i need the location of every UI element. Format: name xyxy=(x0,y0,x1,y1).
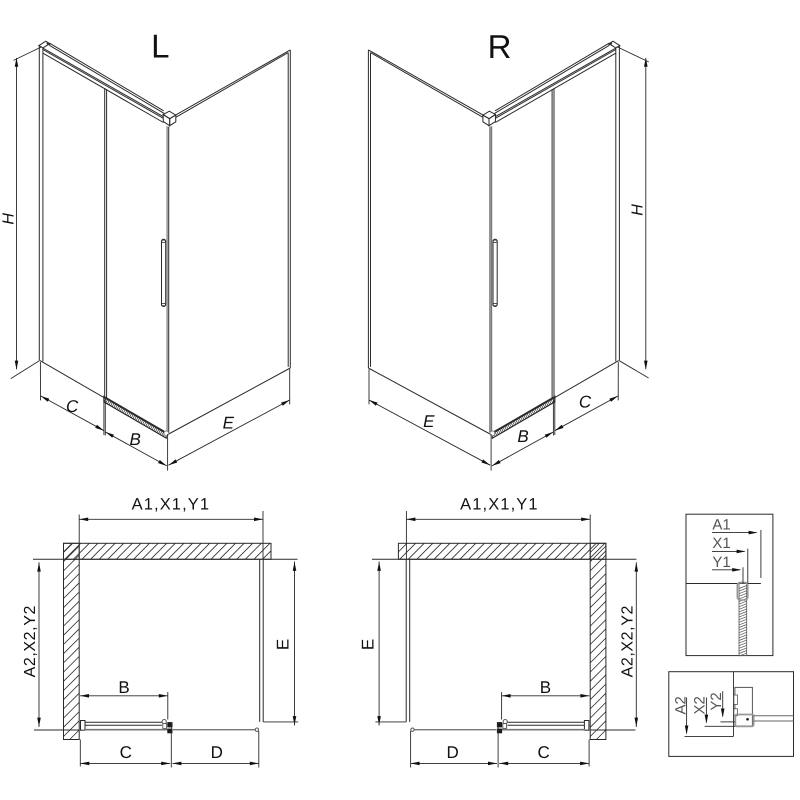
svg-text:E: E xyxy=(274,639,293,650)
svg-text:L: L xyxy=(151,28,169,65)
svg-text:A1,X1,Y1: A1,X1,Y1 xyxy=(460,495,539,513)
svg-text:D: D xyxy=(446,743,458,762)
svg-text:B: B xyxy=(540,678,551,697)
svg-text:H: H xyxy=(630,204,647,216)
svg-text:E: E xyxy=(359,639,378,650)
svg-text:Y1: Y1 xyxy=(712,554,730,571)
svg-text:C: C xyxy=(537,743,549,762)
svg-text:B: B xyxy=(118,678,129,697)
svg-text:B: B xyxy=(130,430,141,449)
svg-text:E: E xyxy=(423,412,435,431)
svg-text:H: H xyxy=(1,213,18,225)
svg-text:A1: A1 xyxy=(712,517,730,534)
svg-text:C: C xyxy=(66,397,79,416)
svg-text:A1,X1,Y1: A1,X1,Y1 xyxy=(132,495,211,513)
svg-text:A2,X2,Y2: A2,X2,Y2 xyxy=(619,605,636,677)
svg-text:D: D xyxy=(211,743,223,762)
svg-text:C: C xyxy=(120,743,132,762)
svg-text:C: C xyxy=(579,393,592,412)
svg-text:R: R xyxy=(488,28,512,65)
svg-text:E: E xyxy=(223,413,235,432)
svg-text:B: B xyxy=(517,427,528,446)
svg-text:X1: X1 xyxy=(712,535,730,552)
svg-text:A2,X2,Y2: A2,X2,Y2 xyxy=(22,605,39,677)
